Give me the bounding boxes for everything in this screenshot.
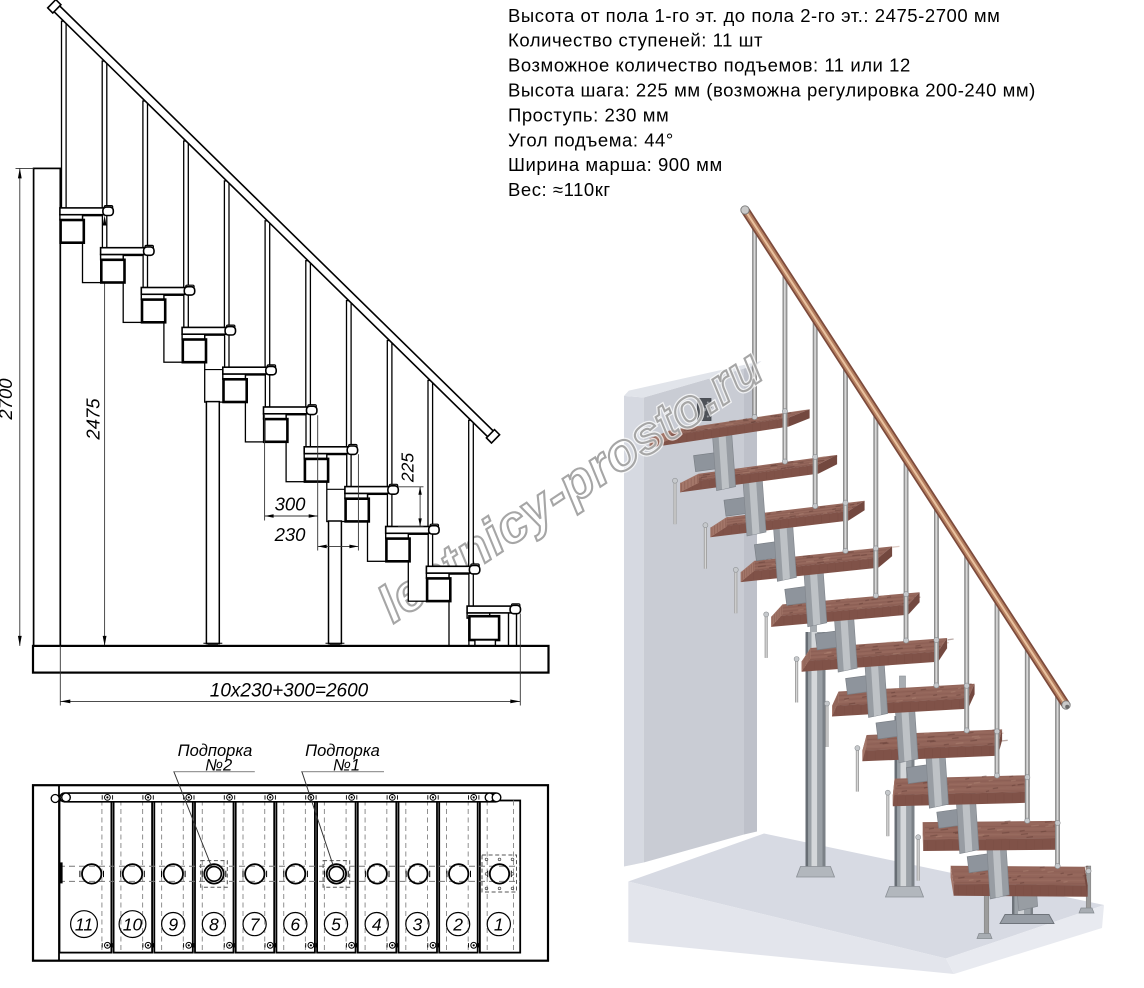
svg-text:2700: 2700	[0, 378, 16, 421]
svg-text:10x230+300=2600: 10x230+300=2600	[210, 681, 369, 702]
svg-text:6: 6	[290, 914, 300, 934]
svg-text:300: 300	[275, 494, 307, 515]
svg-text:Проступь: 230 мм: Проступь: 230 мм	[508, 104, 669, 125]
svg-text:2: 2	[452, 914, 463, 934]
svg-text:4: 4	[372, 914, 382, 934]
svg-text:Ширина марша: 900 мм: Ширина марша: 900 мм	[508, 154, 723, 175]
svg-text:5: 5	[331, 914, 341, 934]
svg-text:Высота шага: 225 мм (возможна: Высота шага: 225 мм (возможна регулировк…	[508, 80, 1036, 101]
svg-text:225: 225	[398, 453, 418, 483]
svg-text:3: 3	[413, 914, 423, 934]
svg-text:Возможное количество подъемов:: Возможное количество подъемов: 11 или 12	[508, 55, 911, 76]
svg-text:10: 10	[123, 914, 143, 934]
svg-text:230: 230	[274, 524, 307, 545]
svg-text:Высота от пола 1-го эт. до пол: Высота от пола 1-го эт. до пола 2-го эт.…	[508, 5, 1000, 26]
svg-text:11: 11	[75, 914, 93, 934]
svg-text:8: 8	[209, 914, 219, 934]
svg-text:7: 7	[250, 914, 261, 934]
svg-text:2475: 2475	[83, 398, 104, 441]
svg-text:9: 9	[168, 914, 178, 934]
svg-text:Вес: ≈110кг: Вес: ≈110кг	[508, 179, 611, 200]
svg-text:Количество ступеней: 11 шт: Количество ступеней: 11 шт	[508, 30, 763, 51]
svg-text:Угол подъема: 44°: Угол подъема: 44°	[508, 129, 674, 150]
svg-text:1: 1	[494, 914, 504, 934]
